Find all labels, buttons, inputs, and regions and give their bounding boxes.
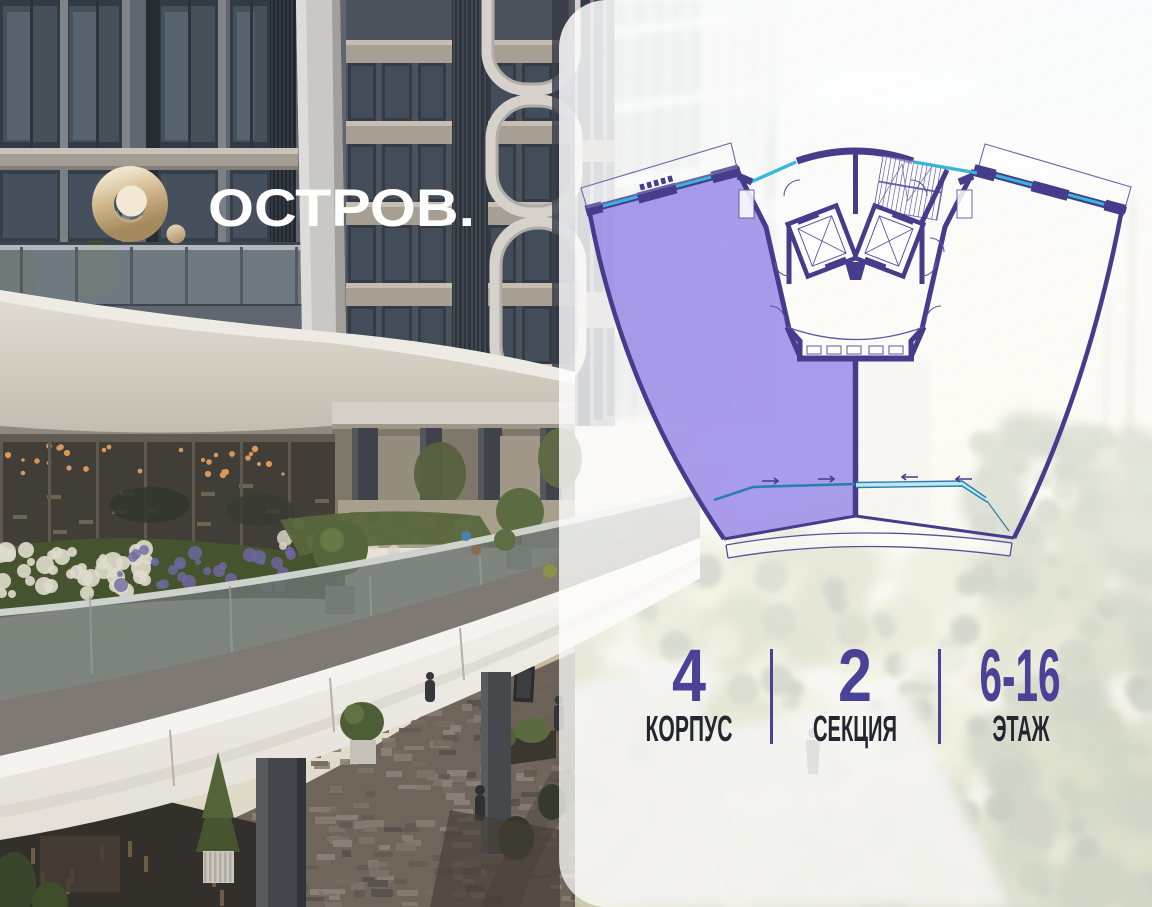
svg-text:КОРПУС: КОРПУС	[646, 708, 733, 749]
svg-text:СЕКЦИЯ: СЕКЦИЯ	[813, 708, 897, 749]
svg-text:6-16: 6-16	[980, 634, 1061, 717]
svg-text:2: 2	[838, 634, 872, 717]
svg-text:ЭТАЖ: ЭТАЖ	[993, 708, 1050, 749]
svg-text:4: 4	[672, 634, 706, 717]
svg-text:ОСТРОВ.: ОСТРОВ.	[208, 179, 475, 238]
